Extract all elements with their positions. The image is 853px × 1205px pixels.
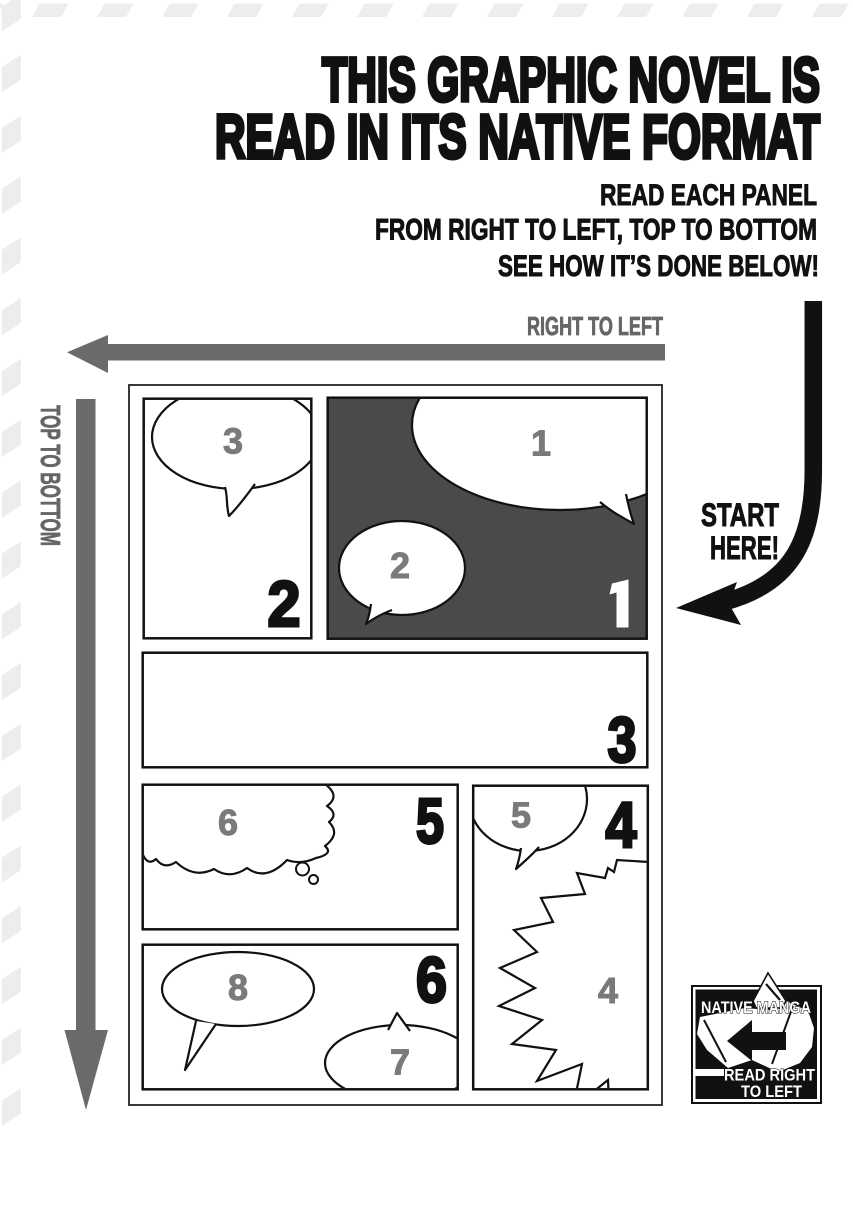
svg-text:FROM RIGHT TO LEFT, TOP TO BOT: FROM RIGHT TO LEFT, TOP TO BOTTOM bbox=[375, 214, 817, 247]
svg-text:SEE HOW IT’S DONE BELOW!: SEE HOW IT’S DONE BELOW! bbox=[498, 250, 819, 283]
svg-text:4: 4 bbox=[606, 789, 637, 861]
svg-text:6: 6 bbox=[218, 802, 238, 843]
svg-text:START: START bbox=[701, 497, 779, 533]
svg-text:READ EACH PANEL: READ EACH PANEL bbox=[600, 179, 817, 212]
svg-text:TOP TO BOTTOM: TOP TO BOTTOM bbox=[35, 405, 66, 546]
svg-text:3: 3 bbox=[608, 704, 637, 776]
svg-text:5: 5 bbox=[416, 785, 444, 857]
svg-text:4: 4 bbox=[598, 970, 618, 1011]
svg-text:5: 5 bbox=[511, 795, 531, 836]
svg-text:RIGHT TO LEFT: RIGHT TO LEFT bbox=[527, 311, 663, 341]
svg-text:NATIVE MANGA: NATIVE MANGA bbox=[701, 999, 811, 1017]
svg-text:6: 6 bbox=[416, 944, 447, 1016]
svg-text:8: 8 bbox=[228, 967, 248, 1008]
svg-text:2: 2 bbox=[390, 545, 410, 586]
svg-text:2: 2 bbox=[268, 568, 301, 640]
svg-text:HERE!: HERE! bbox=[710, 530, 779, 566]
svg-text:1: 1 bbox=[531, 423, 551, 464]
svg-text:7: 7 bbox=[390, 1042, 410, 1083]
svg-text:3: 3 bbox=[223, 421, 243, 462]
svg-text:TO LEFT: TO LEFT bbox=[741, 1082, 803, 1101]
svg-text:READ IN ITS NATIVE FORMAT: READ IN ITS NATIVE FORMAT bbox=[215, 102, 820, 172]
